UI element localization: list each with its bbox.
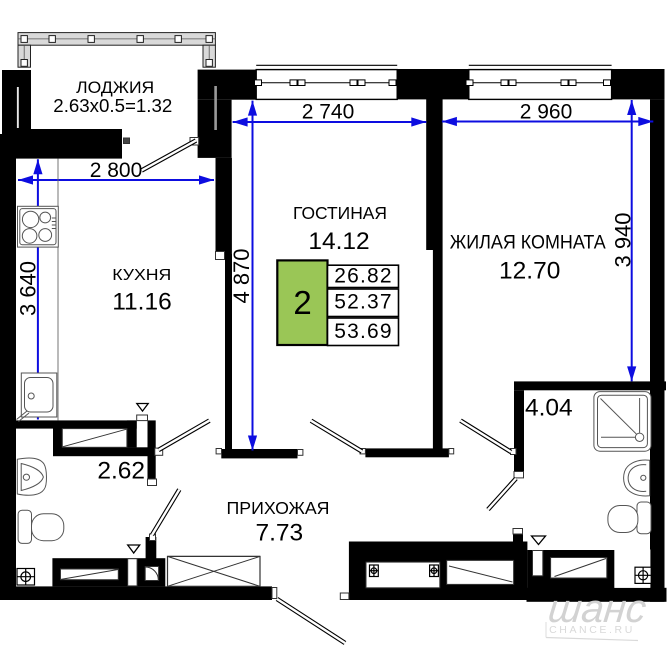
svg-text:7.73: 7.73 bbox=[255, 519, 303, 546]
svg-text:26.82: 26.82 bbox=[334, 264, 393, 287]
svg-text:4.04: 4.04 bbox=[525, 394, 573, 421]
svg-text:ЛОДЖИЯ: ЛОДЖИЯ bbox=[76, 79, 154, 97]
svg-text:12.70: 12.70 bbox=[499, 258, 560, 285]
svg-text:3 640: 3 640 bbox=[16, 261, 41, 316]
svg-text:52.37: 52.37 bbox=[334, 291, 393, 314]
svg-text:2 740: 2 740 bbox=[302, 101, 355, 124]
svg-text:3 940: 3 940 bbox=[611, 212, 636, 267]
svg-text:2.63x0.5=1.32: 2.63x0.5=1.32 bbox=[53, 96, 172, 116]
svg-text:CHANCE.RU: CHANCE.RU bbox=[549, 624, 635, 636]
svg-text:4 870: 4 870 bbox=[229, 248, 254, 303]
svg-text:53.69: 53.69 bbox=[334, 320, 393, 343]
svg-text:2 800: 2 800 bbox=[90, 159, 143, 182]
svg-text:14.12: 14.12 bbox=[308, 228, 369, 255]
svg-text:КУХНЯ: КУХНЯ bbox=[112, 267, 171, 284]
svg-text:2.62: 2.62 bbox=[97, 457, 145, 484]
svg-text:ПРИХОЖАЯ: ПРИХОЖАЯ bbox=[227, 498, 330, 518]
svg-text:ГОСТИНАЯ: ГОСТИНАЯ bbox=[293, 203, 387, 223]
svg-text:11.16: 11.16 bbox=[112, 289, 172, 316]
svg-text:ЖИЛАЯ КОМНАТА: ЖИЛАЯ КОМНАТА bbox=[450, 233, 606, 254]
svg-text:2: 2 bbox=[293, 284, 311, 321]
svg-text:2 960: 2 960 bbox=[520, 101, 573, 124]
